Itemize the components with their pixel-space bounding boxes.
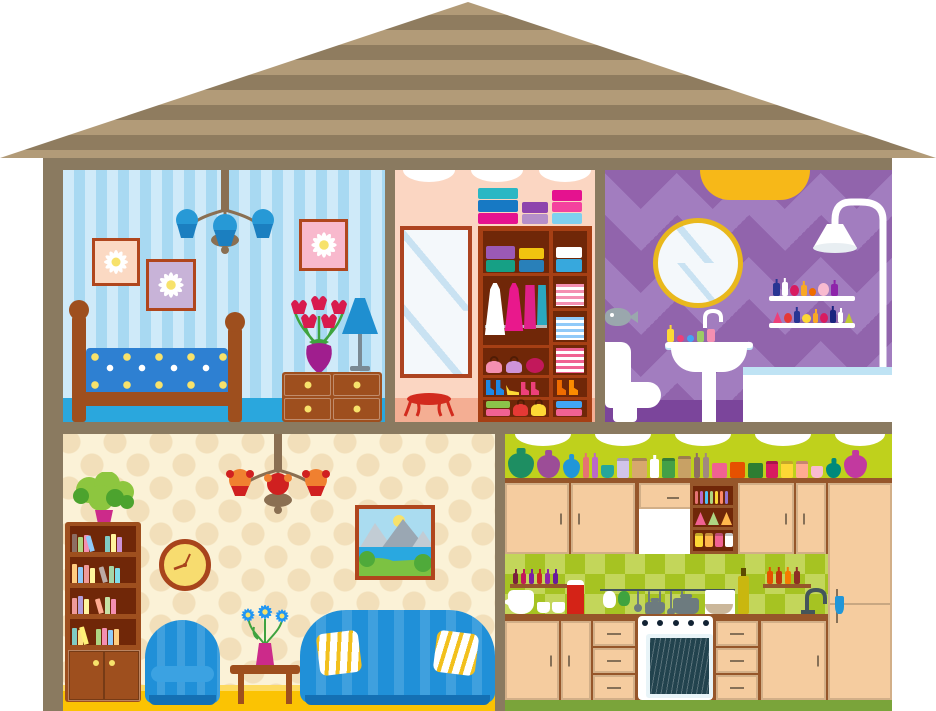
box [478, 188, 518, 199]
daisy-picture-3 [299, 219, 348, 271]
utensil [637, 591, 639, 605]
dresser [282, 372, 382, 422]
bookcase [65, 522, 141, 702]
box [478, 200, 518, 212]
book [115, 568, 120, 583]
bag [708, 512, 719, 525]
open-shelf-unit [690, 483, 736, 554]
daisy-art [153, 267, 189, 303]
oven-window [646, 634, 713, 698]
jar [632, 458, 647, 478]
table-leg [238, 674, 244, 704]
sink-pedestal [702, 370, 716, 422]
box [486, 246, 515, 259]
jar [725, 533, 733, 547]
daisy-art [99, 245, 133, 279]
bag [721, 512, 732, 525]
boot-shelf [557, 379, 585, 395]
stove-knobs [642, 620, 709, 626]
cup [601, 465, 614, 478]
stool [403, 392, 455, 420]
bottle [592, 457, 598, 478]
sofa-pillow [433, 630, 480, 677]
drawer [716, 675, 758, 700]
drawer [593, 621, 635, 646]
rack-shelf [510, 584, 572, 588]
rect [700, 491, 703, 504]
toilet-base [613, 404, 637, 422]
upper-cabinet-door [571, 483, 635, 554]
boxes [519, 248, 544, 272]
bedroom [63, 170, 385, 422]
folded-clothes [556, 348, 584, 373]
jug [844, 455, 867, 478]
box [519, 248, 544, 259]
flower-soap [687, 335, 694, 342]
book [72, 534, 77, 552]
sink-items [667, 326, 751, 342]
box-stack [552, 190, 582, 224]
wall-clock [159, 539, 211, 591]
wall-divider [495, 434, 505, 711]
kitchen-floor [505, 700, 892, 711]
book-shelf [72, 588, 134, 614]
purse [486, 361, 502, 373]
wardrobe-top-boxes [478, 190, 592, 224]
pot [645, 602, 665, 614]
boot [496, 380, 504, 395]
rect [705, 491, 708, 504]
boxes [486, 401, 510, 416]
book [72, 628, 77, 645]
book [96, 629, 101, 645]
dresser-drawer [284, 398, 331, 420]
living-room [63, 434, 495, 711]
ceiling-light [700, 170, 810, 200]
bag-row [695, 510, 731, 525]
armchair-seat [151, 666, 214, 682]
tube [707, 329, 715, 342]
upper-cabinet-door [796, 483, 826, 554]
bed-post-right [228, 328, 242, 422]
jar [715, 533, 723, 547]
jar [781, 461, 793, 478]
faucet [701, 308, 725, 328]
bag-shelf [486, 349, 548, 373]
jar [695, 533, 703, 547]
armchair-base [149, 695, 216, 705]
folded-clothes [556, 284, 584, 306]
sofa-pillow [316, 630, 363, 677]
sink-basin [671, 348, 747, 372]
boxes [556, 247, 582, 272]
purse [506, 361, 522, 373]
bottle [513, 573, 518, 584]
book-shelf [72, 526, 134, 552]
coffee-table [230, 665, 300, 674]
upper-cabinet-door [505, 483, 569, 554]
rect [90, 610, 98, 614]
drawer [716, 648, 758, 673]
bottle [583, 457, 589, 478]
jug [537, 455, 560, 478]
fish-ornament [605, 308, 631, 326]
boot [557, 380, 566, 395]
boot [531, 382, 539, 395]
bathroom [605, 170, 892, 422]
round-mirror [653, 218, 743, 308]
dresser-drawer [284, 374, 331, 396]
spice-rack-right [767, 566, 807, 584]
book [111, 599, 116, 614]
cup [552, 602, 565, 613]
kitchen [505, 434, 892, 711]
lower-cabinet-door [761, 621, 826, 700]
heel [506, 385, 519, 395]
suitcases [486, 246, 515, 272]
boot [486, 380, 494, 395]
clock-hands [164, 544, 206, 586]
book [105, 536, 110, 552]
book [102, 628, 107, 645]
bottle [703, 457, 709, 478]
tall-cabinet [828, 483, 892, 700]
bed-rail [86, 392, 228, 406]
boxes [556, 401, 582, 416]
box [556, 259, 582, 272]
boot [521, 382, 529, 395]
hanging-area [483, 276, 549, 345]
daisy-picture-2 [146, 259, 196, 311]
perfume [773, 283, 780, 296]
book [78, 537, 83, 552]
book [108, 630, 113, 645]
floor-divider [63, 422, 882, 434]
bottle [553, 573, 558, 584]
perfume [782, 282, 788, 296]
white-dress [484, 283, 506, 335]
landscape-painting [355, 505, 435, 580]
bottle [767, 571, 773, 584]
living-chandelier [218, 434, 338, 522]
drawer [593, 675, 635, 700]
top-shelf-items [508, 448, 890, 478]
sofa-base [305, 695, 490, 705]
jar [662, 458, 675, 478]
tin [712, 463, 727, 478]
bath-water [743, 367, 892, 375]
wardrobe-interior [483, 231, 587, 417]
jar-row [695, 533, 731, 547]
book [109, 566, 114, 583]
armchair [145, 620, 220, 703]
box [556, 247, 582, 258]
stripe-shelf [556, 348, 586, 373]
sofa [300, 610, 495, 703]
bottle [529, 573, 534, 584]
potted-plant [67, 472, 141, 524]
spice-row [695, 489, 731, 504]
rect [715, 491, 718, 504]
roof [0, 0, 936, 163]
suitcase-shelf [486, 235, 548, 272]
shower [795, 190, 892, 375]
table-lamp [338, 296, 382, 374]
daisy-art [306, 227, 342, 263]
book [90, 568, 95, 583]
jar [678, 456, 691, 478]
book [84, 599, 89, 614]
box-stack [522, 202, 548, 224]
jar [705, 533, 713, 547]
flower-vase [238, 605, 293, 667]
cabinet-door [69, 651, 104, 700]
rect [725, 491, 728, 504]
bathtub [743, 367, 892, 422]
drawer [716, 621, 758, 646]
stripe-shelf [556, 280, 586, 306]
pot [673, 598, 699, 614]
blue-bottle [835, 596, 844, 614]
bottle [521, 573, 526, 584]
pink-dress [504, 283, 524, 331]
box [552, 202, 582, 212]
book [111, 534, 116, 552]
rect [710, 491, 713, 504]
cup [811, 466, 823, 478]
bookcase-cabinet [68, 650, 140, 701]
hat [526, 358, 544, 373]
box [486, 409, 510, 416]
bed-blanket [86, 348, 228, 392]
dresser-drawer [333, 398, 380, 420]
jar [617, 458, 629, 478]
jar [766, 461, 778, 478]
folded-clothes [556, 317, 584, 340]
bottle [794, 571, 800, 584]
teal-garment [537, 285, 547, 325]
box [522, 202, 548, 213]
book-shelf [72, 557, 134, 583]
box-shelf [556, 235, 586, 272]
bottle [537, 573, 542, 584]
stripe-shelf [556, 314, 586, 340]
tin [748, 463, 763, 478]
rect [90, 641, 95, 645]
bag [695, 512, 706, 525]
house-frame [43, 150, 892, 711]
flower-soap [677, 335, 684, 342]
oil-bottle [738, 576, 749, 614]
rect [96, 548, 104, 552]
box [522, 214, 548, 224]
soap [667, 329, 674, 342]
box-stack [478, 188, 518, 224]
dresser-drawer [333, 374, 380, 396]
closet-room [395, 170, 595, 422]
bottom-shelf [486, 400, 548, 416]
lower-cabinet-door [561, 621, 591, 700]
wardrobe [478, 226, 592, 422]
book-shelf [72, 619, 134, 645]
cup [537, 602, 550, 613]
oven-mitt [603, 591, 616, 608]
box [486, 401, 510, 408]
ceiling-scallop [539, 170, 591, 182]
table-leg [286, 674, 292, 704]
jug [826, 463, 841, 478]
box [486, 260, 515, 272]
sink-faucet [801, 586, 831, 614]
magenta-skirt [524, 285, 536, 329]
handbag [531, 404, 546, 416]
jug [563, 459, 580, 478]
tall-mirror [400, 226, 472, 378]
bottle [785, 571, 791, 584]
tin [730, 462, 745, 478]
handbag [513, 404, 528, 416]
jar [796, 461, 808, 478]
box [478, 213, 518, 224]
drawer [593, 648, 635, 673]
rect [720, 491, 723, 504]
bottle [545, 573, 550, 584]
bottle [650, 459, 659, 478]
perfume [773, 312, 782, 323]
bed-post-left [72, 316, 86, 422]
bottle [776, 571, 782, 584]
lower-cabinet-door [505, 621, 559, 700]
wall-divider [595, 170, 605, 422]
boot [569, 380, 578, 395]
cabinet-door [104, 651, 139, 700]
tube [697, 331, 704, 342]
bottom-box-shelf [556, 400, 586, 416]
rect [695, 491, 698, 504]
box [556, 401, 582, 408]
box [552, 190, 582, 201]
box [519, 260, 544, 272]
wall-divider [385, 170, 395, 422]
book [72, 564, 77, 583]
book [117, 537, 122, 552]
book [105, 597, 110, 614]
book [72, 598, 77, 614]
box [556, 409, 582, 416]
ceiling-scallop [471, 170, 523, 182]
daisy-picture-1 [92, 238, 140, 286]
spice-rack-left [513, 568, 569, 584]
jug [508, 453, 534, 478]
book [114, 629, 119, 645]
shoe-shelf [486, 379, 548, 395]
perfume [784, 313, 792, 323]
upper-cabinet-door [738, 483, 794, 554]
bottle [694, 457, 700, 478]
chandelier [165, 170, 285, 262]
book [78, 567, 83, 583]
ceiling-scallop [403, 170, 455, 182]
stove [638, 616, 713, 700]
landscape-art [359, 509, 431, 576]
dollhouse-illustration [0, 0, 936, 711]
box [552, 213, 582, 224]
book [78, 596, 83, 614]
book [84, 565, 89, 583]
utensil [670, 591, 672, 609]
oven-mitt [618, 591, 630, 606]
kettle [508, 590, 534, 614]
